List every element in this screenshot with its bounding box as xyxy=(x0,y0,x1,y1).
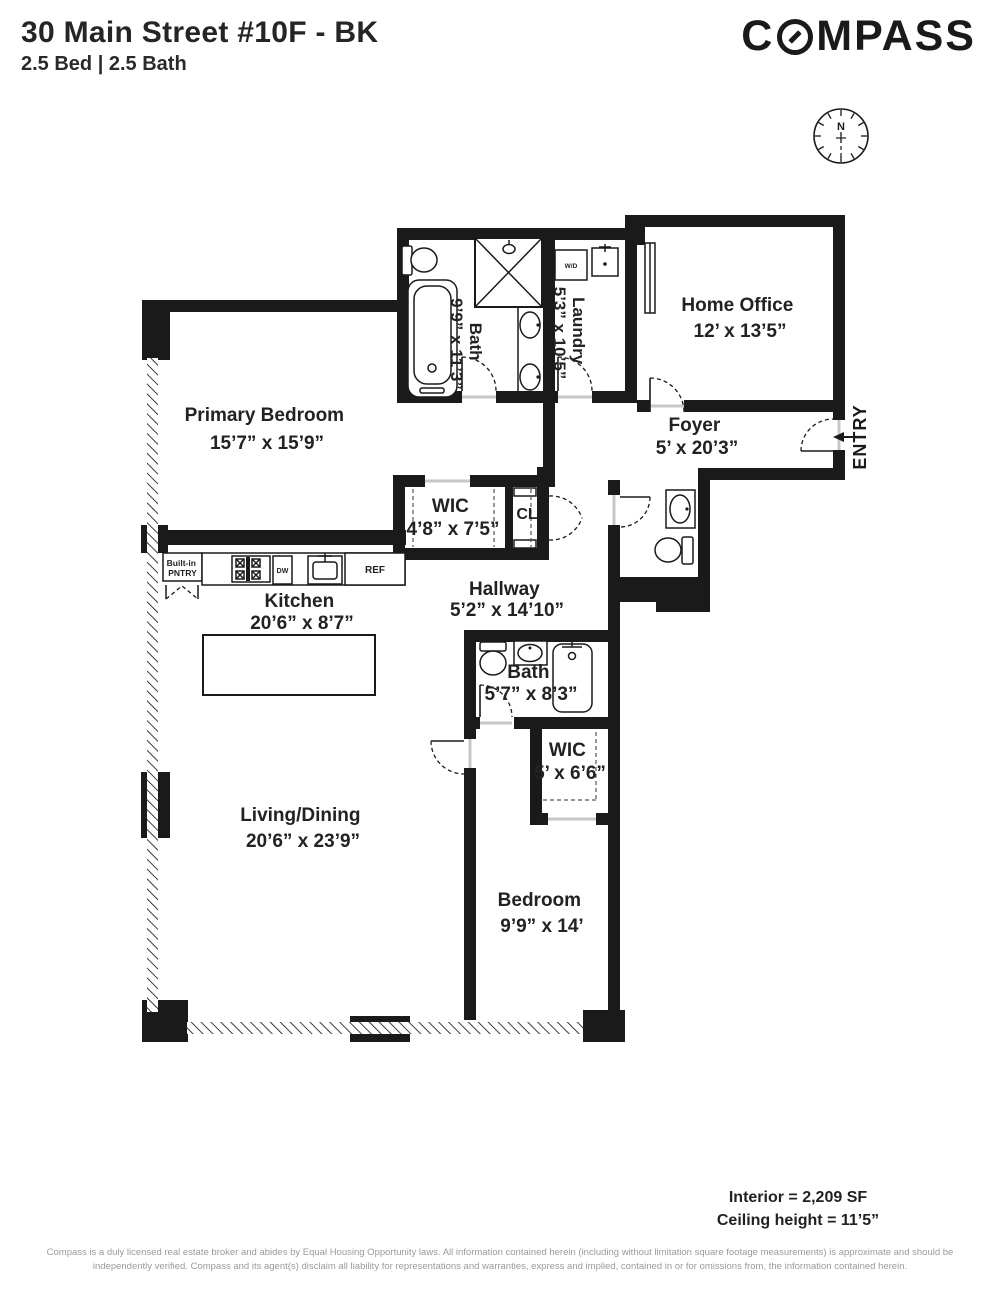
entry-label: ENTRY xyxy=(850,404,870,469)
floor-plan-drawing: N xyxy=(0,0,1000,1294)
window-icon xyxy=(645,243,655,313)
compass-rose-icon: N xyxy=(814,109,868,163)
west-window-wall xyxy=(147,358,158,1012)
primary-bath-label: Bath 9’9” x 11’3” xyxy=(447,298,485,390)
hallway-label: Hallway 5’2” x 14’10” xyxy=(450,579,564,621)
primary-bedroom-label: Primary Bedroom 15’7” x 15’9” xyxy=(185,405,350,454)
primary-bath-fixtures xyxy=(402,238,542,397)
ceiling-height: Ceiling height = 11’5” xyxy=(648,1209,948,1232)
wic-second-label: WIC 5’ x 6’6” xyxy=(534,740,606,784)
kitchen-label: Kitchen 20’6” x 8’7” xyxy=(250,591,354,634)
laundry-label: Laundry 5’3” x 10’5” xyxy=(550,287,588,380)
compass-north-label: N xyxy=(837,121,845,133)
pantry-label: Built-in PNTRY xyxy=(167,558,199,578)
dishwasher-label: DW xyxy=(277,568,289,575)
home-office-label: Home Office 12’ x 13’5” xyxy=(681,295,798,342)
refrigerator-label: REF xyxy=(365,565,385,576)
floor-plan-page: 30 Main Street #10F - BK 2.5 Bed | 2.5 B… xyxy=(0,0,1000,1294)
closet-label: CL xyxy=(516,506,538,523)
foyer-label: Foyer 5’ x 20’3” xyxy=(656,415,738,459)
legal-disclaimer: Compass is a duly licensed real estate b… xyxy=(40,1246,960,1275)
kitchen-island xyxy=(203,635,375,695)
south-window-wall xyxy=(187,1022,583,1034)
powder-room-fixtures xyxy=(655,490,695,564)
living-dining-label: Living/Dining 20’6” x 23’9” xyxy=(240,805,366,852)
wic-primary-label: WIC 4’8” x 7’5” xyxy=(407,496,500,540)
laundry-fixtures: W/D xyxy=(555,244,618,280)
interior-area: Interior = 2,209 SF xyxy=(648,1186,948,1209)
area-summary: Interior = 2,209 SF Ceiling height = 11’… xyxy=(648,1186,948,1232)
bedroom-label: Bedroom 9’9” x 14’ xyxy=(498,890,587,937)
washer-dryer-label: W/D xyxy=(565,263,578,270)
